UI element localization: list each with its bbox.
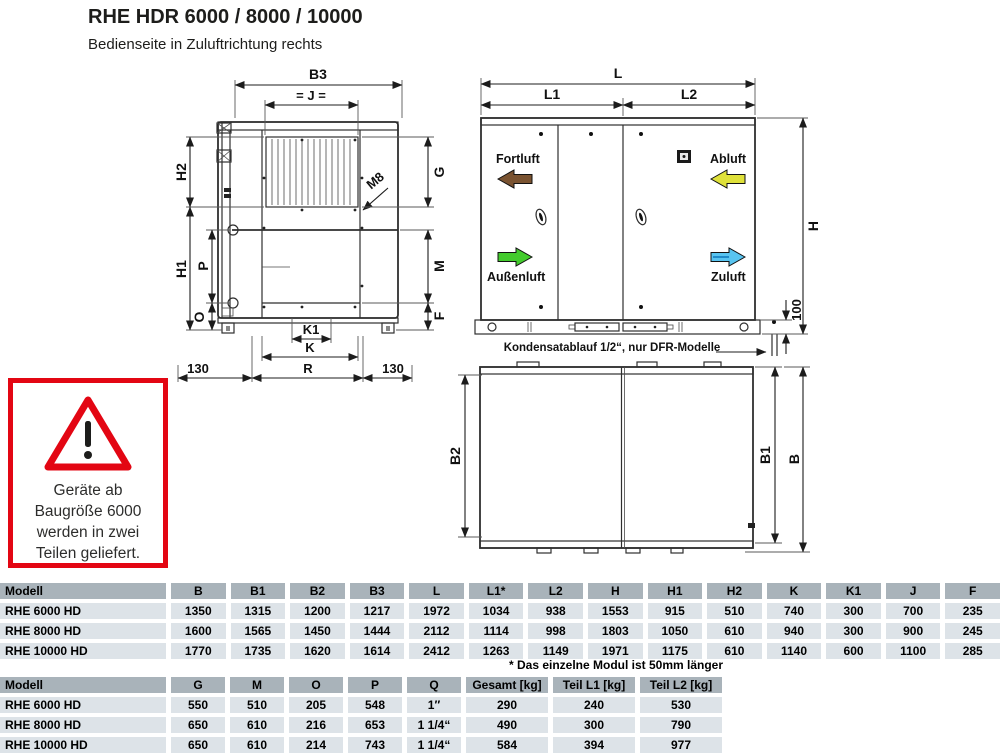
table-cell: 610 (707, 643, 762, 659)
table-cell: RHE 10000 HD (0, 737, 166, 753)
table-cell: RHE 8000 HD (0, 623, 166, 639)
side-view-drawing: Fortluft Abluft Außenluft Zuluft (475, 65, 821, 356)
column-header: B3 (350, 583, 405, 599)
table-cell: 1735 (231, 643, 286, 659)
column-header: B2 (290, 583, 345, 599)
dim-label-l: L (614, 65, 623, 81)
table-cell: 610 (230, 717, 284, 733)
condensate-note: Kondensatablauf 1/2“, nur DFR-Modelle (504, 342, 721, 354)
flow-label-zuluft: Zuluft (711, 270, 747, 284)
screw-dots (539, 132, 643, 309)
warning-box: Geräte ab Baugröße 6000 werden in zwei T… (8, 378, 168, 568)
table-cell: 700 (886, 603, 941, 619)
side-view-dimensions: L L1 L2 H 100 (481, 65, 821, 354)
flow-label-fortluft: Fortluft (496, 152, 541, 166)
column-header: Teil L2 [kg] (640, 677, 722, 693)
column-header: J (886, 583, 941, 599)
table-cell: 1 1/4“ (407, 717, 461, 733)
table-cell: 510 (707, 603, 762, 619)
table-cell: 1553 (588, 603, 643, 619)
dim-label-k1: K1 (303, 322, 320, 337)
table-cell: 300 (553, 717, 635, 733)
dim-label-h1: H1 (173, 260, 189, 278)
table-cell: 548 (348, 697, 402, 713)
table-cell: 610 (707, 623, 762, 639)
dim-label-h: H (805, 221, 821, 231)
table-cell: 600 (826, 643, 881, 659)
table-cell: 300 (826, 623, 881, 639)
table-cell: 650 (171, 737, 225, 753)
table-cell: RHE 8000 HD (0, 717, 166, 733)
table-cell: 1114 (469, 623, 524, 639)
page-title: RHE HDR 6000 / 8000 / 10000 (88, 6, 363, 29)
column-header: Gesamt [kg] (466, 677, 548, 693)
column-header: K1 (826, 583, 881, 599)
top-view-drawing: B2 B1 B (447, 362, 810, 553)
dim-label-b3: B3 (309, 66, 327, 82)
table-cell: 940 (767, 623, 822, 639)
table-cell: 1263 (469, 643, 524, 659)
table-cell: 1″ (407, 697, 461, 713)
dim-label-h2: H2 (173, 163, 189, 181)
table-cell: 550 (171, 697, 225, 713)
dim-label-g: G (431, 166, 447, 177)
flow-label-abluft: Abluft (710, 152, 747, 166)
front-view-dimensions: B3 = J = H2 H1 P O G (173, 66, 447, 382)
warning-text-line: Geräte ab (13, 480, 163, 501)
column-header: H1 (648, 583, 703, 599)
column-header: Modell (0, 677, 166, 693)
abluft-arrow-icon (711, 170, 745, 188)
table-cell: 235 (945, 603, 1000, 619)
dim-label-b: B (786, 454, 802, 464)
dim-label-o: O (191, 311, 207, 322)
table-cell: 1450 (290, 623, 345, 639)
table-footnote: * Das einzelne Modul ist 50mm länger (487, 658, 745, 672)
table-cell: 1100 (886, 643, 941, 659)
warning-triangle-icon (42, 393, 134, 475)
column-header: M (230, 677, 284, 693)
table-cell: 740 (767, 603, 822, 619)
door-hinges (217, 123, 238, 316)
table-cell: 490 (466, 717, 548, 733)
table-cell: 530 (640, 697, 722, 713)
column-header: L1* (469, 583, 524, 599)
top-view-dimensions: B2 B1 B (447, 367, 810, 552)
column-header: G (171, 677, 225, 693)
column-header: F (945, 583, 1000, 599)
column-header: Teil L1 [kg] (553, 677, 635, 693)
table-cell: 650 (171, 717, 225, 733)
table-cell: 2112 (409, 623, 464, 639)
table-cell: 240 (553, 697, 635, 713)
table-cell: 998 (528, 623, 583, 639)
flow-label-aussenluft: Außenluft (487, 270, 546, 284)
table-cell: 790 (640, 717, 722, 733)
table-cell: 900 (886, 623, 941, 639)
datasheet-page: RHE HDR 6000 / 8000 / 10000 Bedienseite … (0, 0, 1000, 754)
table-cell: 394 (553, 737, 635, 753)
table-cell: RHE 10000 HD (0, 643, 166, 659)
table-cell: RHE 6000 HD (0, 603, 166, 619)
column-header: P (348, 677, 402, 693)
column-header: L2 (528, 583, 583, 599)
lifting-tabs (517, 362, 755, 553)
page-subtitle: Bedienseite in Zuluftrichtung rechts (88, 36, 322, 53)
dim-label-m: M (431, 260, 447, 272)
table-cell: 1315 (231, 603, 286, 619)
column-header: Q (407, 677, 461, 693)
dim-label-k: K (305, 340, 315, 355)
fortluft-arrow-icon (498, 170, 532, 188)
dim-label-p: P (195, 261, 211, 270)
table-cell: 610 (230, 737, 284, 753)
warning-text-line: werden in zwei (13, 522, 163, 543)
column-header: K (767, 583, 822, 599)
table-cell: 1600 (171, 623, 226, 639)
table-cell: 1770 (171, 643, 226, 659)
dim-label-r: R (303, 361, 313, 376)
table-cell: 1140 (767, 643, 822, 659)
table-cell: 1565 (231, 623, 286, 639)
table-cell: 1803 (588, 623, 643, 639)
table-cell: 214 (289, 737, 343, 753)
column-header: O (289, 677, 343, 693)
dim-label-130-right: 130 (382, 361, 404, 376)
column-header: B1 (231, 583, 286, 599)
table-cell: 743 (348, 737, 402, 753)
dim-label-l2: L2 (681, 86, 698, 102)
column-header: B (171, 583, 226, 599)
table-cell: 1614 (350, 643, 405, 659)
dim-label-f: F (431, 311, 447, 320)
dim-label-130-left: 130 (187, 361, 209, 376)
table-cell: 1972 (409, 603, 464, 619)
column-header: H2 (707, 583, 762, 599)
dim-label-b1: B1 (757, 446, 773, 464)
table-cell: 653 (348, 717, 402, 733)
table-cell: 1350 (171, 603, 226, 619)
table-cell: 290 (466, 697, 548, 713)
dim-label-l1: L1 (544, 86, 561, 102)
table-cell: 1050 (648, 623, 703, 639)
aussenluft-arrow-icon (498, 248, 532, 266)
dim-label-m8: M8 (363, 169, 386, 192)
table-cell: 977 (640, 737, 722, 753)
table-cell: 938 (528, 603, 583, 619)
table-cell: 1200 (290, 603, 345, 619)
table-cell: 1217 (350, 603, 405, 619)
table-cell: 1175 (648, 643, 703, 659)
column-header: H (588, 583, 643, 599)
door-handles (534, 208, 648, 226)
table-cell: 300 (826, 603, 881, 619)
dimensions-table: ModellBB1B2B3LL1*L2HH1H2KK1JFRHE 6000 HD… (0, 583, 1000, 659)
table-cell: 1149 (528, 643, 583, 659)
table-cell: 1620 (290, 643, 345, 659)
dim-label-b2: B2 (447, 447, 463, 465)
table-cell: 1034 (469, 603, 524, 619)
column-header: Modell (0, 583, 166, 599)
dim-label-100: 100 (789, 299, 804, 321)
warning-text-line: Teilen geliefert. (13, 543, 163, 564)
table-cell: 1444 (350, 623, 405, 639)
dim-label-j: = J = (296, 88, 326, 103)
warning-text-line: Baugröße 6000 (13, 501, 163, 522)
table-cell: 1 1/4“ (407, 737, 461, 753)
table-cell: 584 (466, 737, 548, 753)
table-cell: 285 (945, 643, 1000, 659)
switch-box (677, 150, 691, 163)
table-cell: 216 (289, 717, 343, 733)
front-view-drawing: M8 B3 = J = H2 H1 P O (173, 66, 447, 382)
table-cell: 915 (648, 603, 703, 619)
table-cell: 510 (230, 697, 284, 713)
column-header: L (409, 583, 464, 599)
weights-table: ModellGMOPQGesamt [kg]Teil L1 [kg]Teil L… (0, 677, 722, 753)
table-cell: 205 (289, 697, 343, 713)
table-cell: 2412 (409, 643, 464, 659)
table-cell: RHE 6000 HD (0, 697, 166, 713)
table-cell: 245 (945, 623, 1000, 639)
intake-grille (266, 137, 358, 207)
table-cell: 1971 (588, 643, 643, 659)
